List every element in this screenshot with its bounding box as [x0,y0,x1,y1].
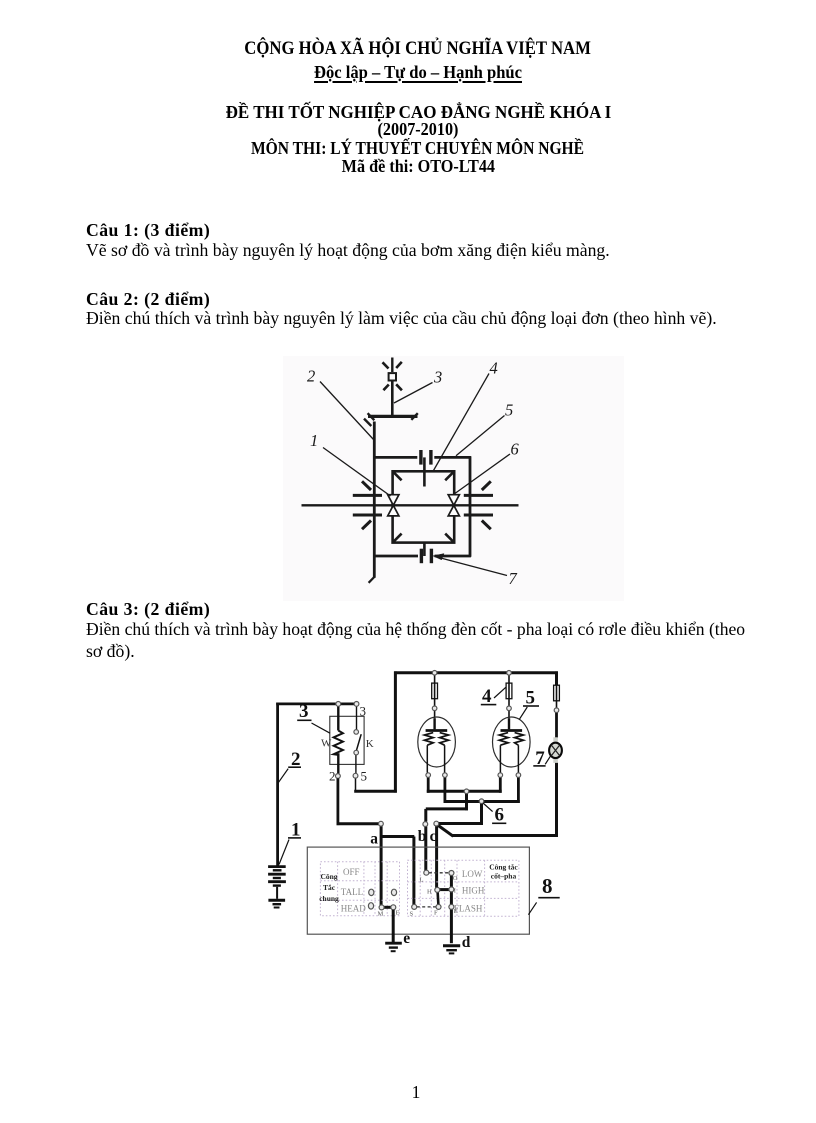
svg-text:3: 3 [299,701,309,722]
svg-text:cốt–pha: cốt–pha [491,872,517,881]
svg-text:6: 6 [495,805,505,826]
svg-text:K: K [366,738,374,750]
svg-text:Tắc: Tắc [323,883,336,892]
svg-text:a: a [370,830,378,847]
svg-text:c: c [430,828,437,845]
svg-text:L: L [420,877,424,884]
svg-text:Công: Công [320,872,337,881]
svg-text:TALL: TALL [341,887,363,897]
svg-text:M: M [378,911,384,918]
svg-text:HIGH: HIGH [462,886,485,896]
svg-text:E: E [454,908,458,915]
svg-text:I: I [454,888,456,895]
svg-text:S: S [410,911,414,918]
svg-text:2: 2 [329,769,336,784]
svg-text:LOW: LOW [462,869,483,879]
svg-text:E: E [396,910,400,917]
svg-text:b: b [418,828,427,845]
svg-text:d: d [462,934,471,951]
svg-text:F: F [434,910,438,917]
svg-text:FLASH: FLASH [454,903,483,913]
svg-text:O: O [453,875,458,882]
svg-text:chung: chung [319,894,339,903]
svg-text:5: 5 [361,769,368,784]
svg-text:HEAD: HEAD [341,903,366,913]
svg-text:e: e [403,930,410,947]
svg-text:OFF: OFF [343,867,360,877]
svg-text:H: H [427,889,432,896]
svg-text:Công tắc: Công tắc [489,863,518,872]
svg-text:8: 8 [542,874,553,898]
svg-text:3: 3 [360,704,367,719]
svg-text:W: W [321,738,332,750]
